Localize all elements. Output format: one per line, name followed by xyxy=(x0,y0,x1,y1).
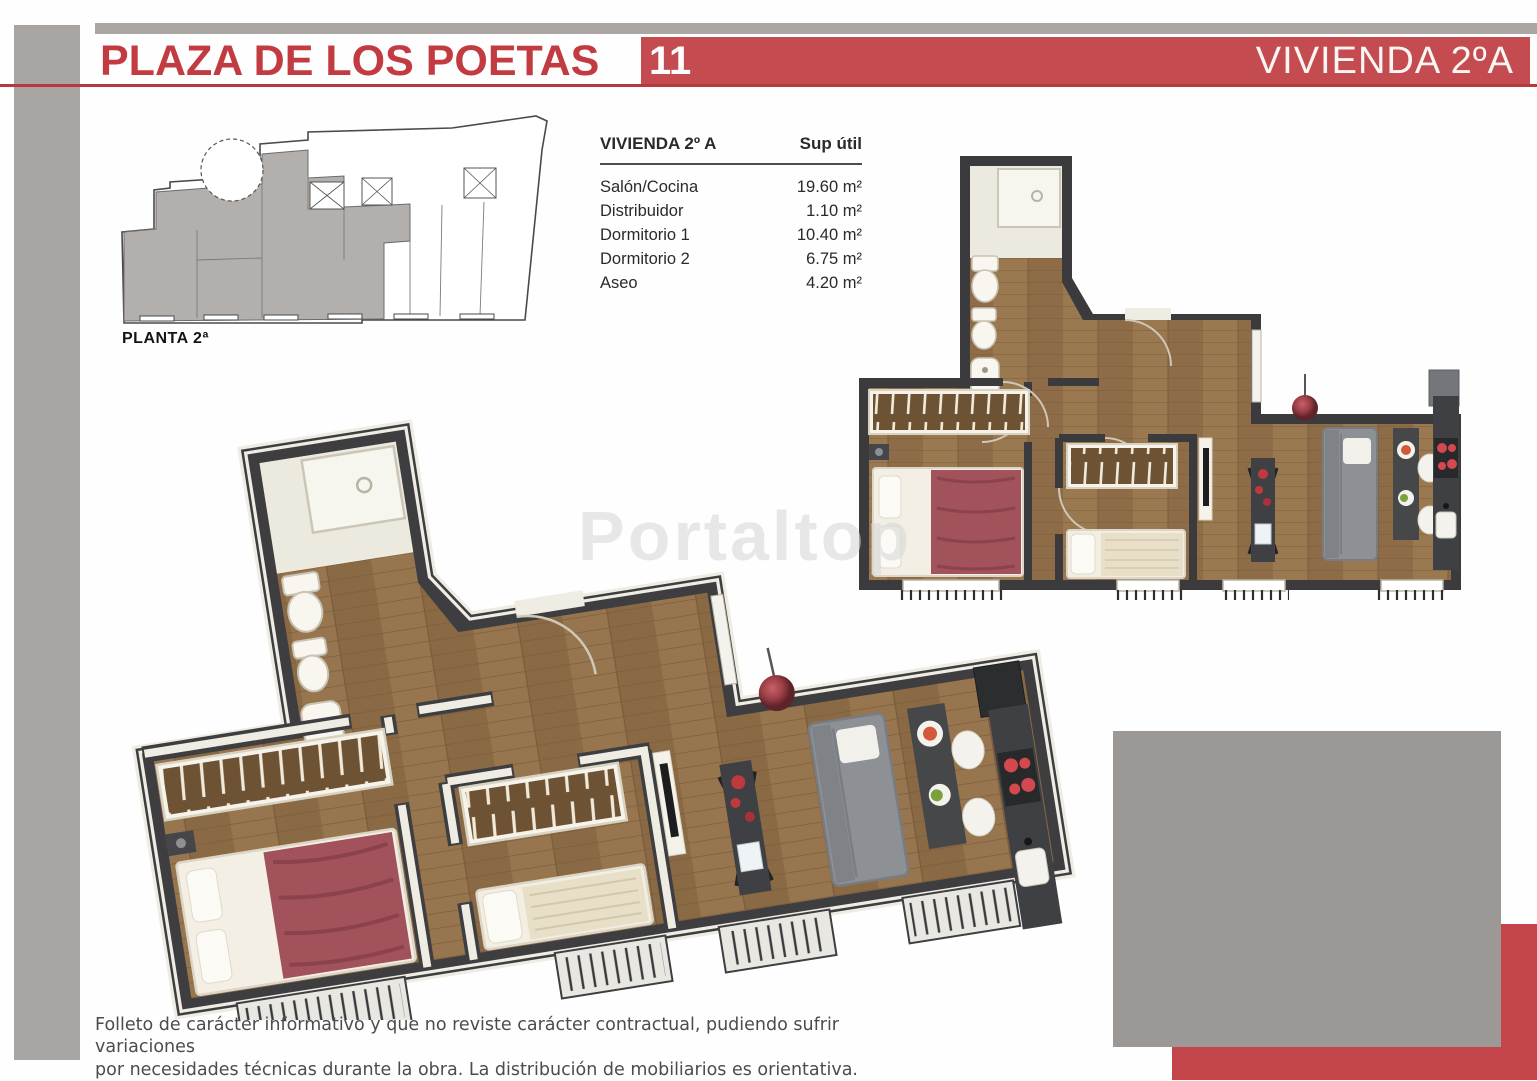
surface-table: VIVIENDA 2º A Sup útil Salón/Cocina19.60… xyxy=(600,134,862,295)
hob-panel xyxy=(1434,438,1458,478)
floorplan-render-3d xyxy=(62,360,1087,1020)
page-title: PLAZA DE LOS POETAS xyxy=(100,40,599,83)
tv xyxy=(1203,448,1209,506)
key-plan-drawing xyxy=(112,110,560,344)
footer-line2: por necesidades técnicas durante la obra… xyxy=(95,1059,925,1081)
hall-window xyxy=(1252,330,1261,402)
laptop xyxy=(1255,524,1271,544)
table-row: Salón/Cocina19.60 m² xyxy=(600,175,862,199)
sofa-cushion xyxy=(835,724,880,764)
toilet-tank xyxy=(972,256,998,271)
kitchen-sink xyxy=(1015,847,1050,887)
kitchen-sink xyxy=(1436,512,1456,538)
gray-decor-block xyxy=(1113,731,1501,1047)
turret-outline xyxy=(201,139,263,201)
bedroom1 xyxy=(154,729,420,996)
kitchen xyxy=(1429,370,1459,570)
footer-disclaimer: Folleto de carácter informativo y que no… xyxy=(95,1014,925,1081)
bidet-back xyxy=(972,308,996,321)
street-number: 11 xyxy=(641,41,691,81)
tilted-plan xyxy=(93,360,1078,1020)
table-row: Dormitorio 110.40 m² xyxy=(600,223,862,247)
sofa-cushion xyxy=(1343,438,1371,464)
shower-tray xyxy=(998,169,1060,227)
kitchen-faucet xyxy=(1443,503,1449,509)
surface-table-title: VIVIENDA 2º A xyxy=(600,134,716,154)
balcony-rail xyxy=(1377,590,1447,600)
laptop xyxy=(737,842,763,872)
surface-table-column: Sup útil xyxy=(800,134,862,154)
shower-tray xyxy=(302,446,405,533)
surface-table-rule xyxy=(600,163,862,165)
footer-line1: Folleto de carácter informativo y que no… xyxy=(95,1014,925,1059)
toilet-bowl xyxy=(972,270,998,302)
header-red-box: 11 VIVIENDA 2ºA xyxy=(641,37,1530,84)
table-row: Dormitorio 26.75 m² xyxy=(600,247,862,271)
balcony-rail xyxy=(1113,590,1183,600)
bidet-bowl xyxy=(972,321,996,349)
maroon-blanket xyxy=(263,832,411,979)
top-gray-bar xyxy=(95,23,1537,34)
watermark: Portaltop xyxy=(578,496,912,576)
key-plan-label: PLANTA 2ª xyxy=(122,330,209,348)
brochure-page: { "header": { "title": "PLAZA DE LOS POE… xyxy=(0,0,1537,1080)
pendant-lamp xyxy=(1292,395,1318,421)
entry-door-gap xyxy=(1125,308,1171,320)
balcony-rail xyxy=(1219,590,1289,600)
pillow xyxy=(482,889,523,944)
table-row: Aseo4.20 m² xyxy=(600,271,862,295)
table-row: Distribuidor1.10 m² xyxy=(600,199,862,223)
sofa-back xyxy=(1325,430,1339,558)
kitchen-counter xyxy=(1433,396,1459,570)
unit-label: VIVIENDA 2ºA xyxy=(1256,42,1530,80)
